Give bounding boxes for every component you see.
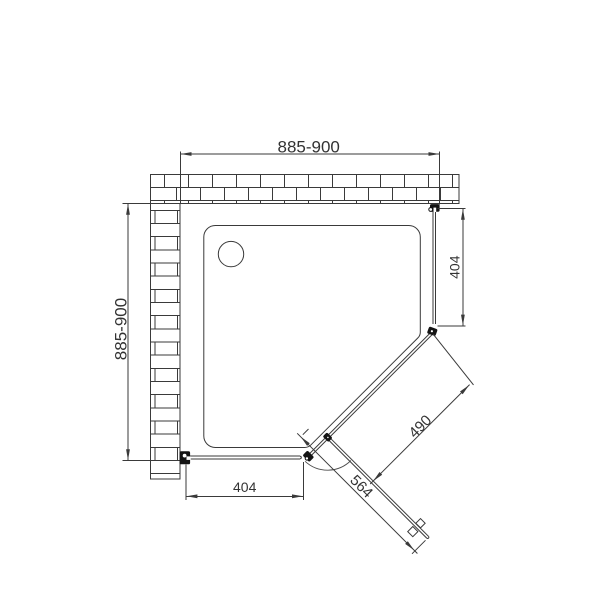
svg-text:885-900: 885-900 — [112, 298, 131, 360]
svg-text:885-900: 885-900 — [278, 137, 340, 156]
svg-text:404: 404 — [233, 479, 257, 495]
svg-text:404: 404 — [447, 255, 463, 279]
